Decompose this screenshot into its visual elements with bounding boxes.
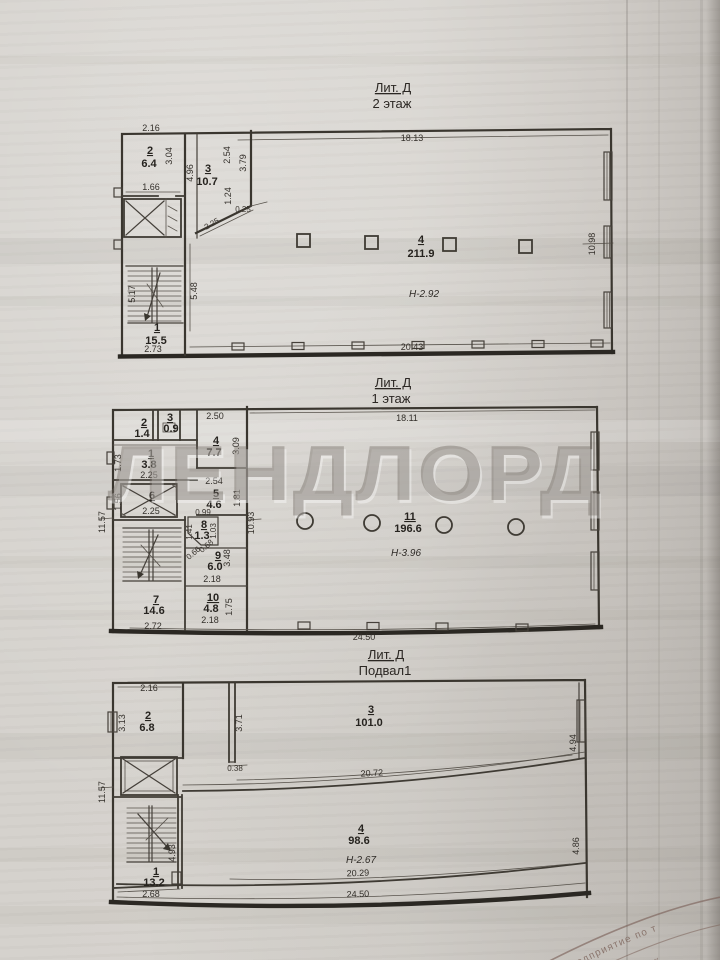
floor2-title-lit: Лит. Д bbox=[375, 80, 412, 95]
basement-room4-height: Н-2.67 bbox=[346, 855, 376, 866]
basement-dim-r2-side: 3.13 bbox=[117, 714, 127, 732]
basement-room3-area: 101.0 bbox=[355, 717, 383, 729]
floor2-room2-area: 6.4 bbox=[141, 158, 157, 170]
floor1-title-lit: Лит. Д bbox=[375, 375, 412, 390]
floor1-dim-bottom: 24.50 bbox=[353, 632, 376, 642]
svg-text:ное предприятие по т: ное предприятие по т bbox=[541, 923, 659, 960]
floorplan-floor2: Лит. Д 2 этаж bbox=[114, 80, 613, 357]
basement-dim-r3-bottom: 20.72 bbox=[360, 767, 383, 778]
basement-dim-bottom: 24.50 bbox=[346, 889, 369, 900]
basement-room2-area: 6.8 bbox=[139, 722, 154, 734]
watermark-text: ЛЕНДЛОРД bbox=[108, 429, 603, 517]
floor2-room4-area: 211.9 bbox=[408, 248, 435, 260]
basement-title-lit: Лит. Д bbox=[368, 647, 405, 662]
floor2-dim-stairs-side: 5.17 bbox=[127, 285, 137, 303]
floor1-room7-area: 14.6 bbox=[143, 605, 164, 617]
basement-dim-r2-top: 2.16 bbox=[140, 683, 158, 693]
floor1-room11-area: 196.6 bbox=[394, 523, 422, 535]
floor2-walls bbox=[114, 129, 613, 357]
stamp-outer-arc bbox=[532, 893, 720, 960]
floor1-dim-r8-left: 1.41 bbox=[185, 524, 194, 540]
floorplan-basement: Лит. Д Подвал1 bbox=[97, 647, 589, 906]
floor1-dim-r4-top: 2.50 bbox=[206, 411, 224, 421]
basement-room1-area: 13.2 bbox=[143, 877, 164, 889]
floor1-dim-r8-right: 1.03 bbox=[209, 523, 218, 539]
floor1-dim-r7-bottom: 2.72 bbox=[144, 621, 162, 631]
basement-room2-number: 2 bbox=[145, 710, 151, 722]
floor1-dim-top: 18.11 bbox=[396, 413, 418, 423]
floor1-dim-left-wall: 11.57 bbox=[97, 511, 107, 533]
floor2-room1-number: 1 bbox=[154, 322, 160, 334]
floor2-dim-r3-lower: 1.24 bbox=[223, 187, 233, 205]
basement-walls bbox=[99, 680, 589, 906]
floor1-dim-r9-side: 3.48 bbox=[222, 549, 232, 567]
floor2-dim-stairs-depth: 5.48 bbox=[189, 282, 199, 300]
floor2-dim-r3-side: 4.96 bbox=[185, 164, 195, 182]
landlord-watermark: ЛЕНДЛОРД ЛЕНДЛОРД bbox=[108, 429, 605, 520]
floor2-dim-r2-bottom: 1.66 bbox=[142, 182, 160, 192]
floor2-dim-bottom: 20.43 bbox=[401, 342, 424, 352]
basement-title-floor: Подвал1 bbox=[359, 663, 412, 678]
floor1-dim-r10-side: 1.75 bbox=[224, 598, 234, 616]
floor2-dim-top: 18.13 bbox=[401, 133, 424, 143]
scanned-floorplan-sheet: Лит. Д 2 этаж bbox=[0, 0, 720, 960]
floor2-dim-r3-far-right: 3.79 bbox=[238, 154, 248, 172]
floor2-room4-height: Н-2.92 bbox=[409, 289, 439, 300]
floor2-room4-number: 4 bbox=[418, 234, 425, 246]
floor1-title-floor: 1 этаж bbox=[372, 391, 411, 406]
floor2-dim-wall-thick: 0.25 bbox=[235, 205, 251, 214]
floor2-dim-r2-side: 3.04 bbox=[164, 147, 174, 165]
round-stamp: ное предприятие по т оценки недвиж bbox=[532, 893, 720, 960]
basement-dim-left-wall: 11.57 bbox=[97, 781, 107, 803]
stamp-arc-text-1: ное предприятие по т bbox=[541, 923, 659, 960]
basement-room4-number: 4 bbox=[358, 823, 365, 835]
basement-dim-offset: 0.38 bbox=[227, 764, 243, 773]
floor2-title-floor: 2 этаж bbox=[373, 96, 412, 111]
floor2-room2-number: 2 bbox=[147, 145, 153, 157]
floor1-dim-r9-bottom: 2.18 bbox=[203, 574, 221, 584]
floor2-room3-area: 10.7 bbox=[196, 176, 217, 188]
basement-dim-r4-bottom: 20.29 bbox=[346, 868, 369, 879]
floor2-dim-diag: 2.25 bbox=[203, 216, 221, 232]
floor1-dim-r10-bottom: 2.18 bbox=[201, 615, 219, 625]
basement-dim-partition: 3.71 bbox=[234, 714, 244, 732]
floor2-dim-right-wall: 10.98 bbox=[587, 233, 597, 256]
floor2-dim-r1-bottom: 2.73 bbox=[144, 344, 162, 354]
floor2-dim-r2-top: 2.16 bbox=[142, 123, 160, 133]
floor2-dim-r3-right: 2.54 bbox=[222, 146, 232, 164]
floor1-room9-area: 6.0 bbox=[207, 561, 222, 573]
basement-dim-r1-side: 4.93 bbox=[167, 844, 177, 862]
basement-dim-r4-side: 4.86 bbox=[571, 837, 581, 855]
basement-dim-r1-bottom: 2.68 bbox=[142, 889, 160, 899]
floor1-room10-area: 4.8 bbox=[203, 603, 218, 615]
floor1-stairs bbox=[123, 528, 181, 581]
floor2-room3-number: 3 bbox=[205, 163, 211, 175]
basement-room3-number: 3 bbox=[368, 704, 374, 716]
basement-dim-r3-side: 4.94 bbox=[568, 734, 578, 752]
floor1-room11-height: Н-3.96 bbox=[391, 548, 421, 559]
basement-room4-area: 98.6 bbox=[348, 835, 369, 847]
